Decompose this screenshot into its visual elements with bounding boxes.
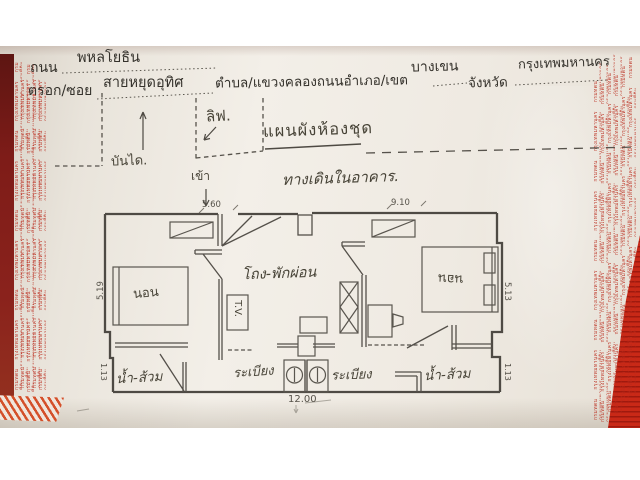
dim-top-left: 5.60 [202, 200, 221, 210]
dim-bottom-width: 12.00 [288, 394, 317, 405]
bedroom-right-partition [342, 242, 366, 347]
enter-label: เข้า [191, 167, 210, 186]
coffee-table [298, 317, 327, 356]
bedroom-left-label: นอน [132, 281, 159, 304]
entrance-door [218, 214, 281, 246]
right-ledge [452, 325, 492, 350]
tv-label: T.V. [232, 300, 243, 317]
top-shaft [298, 215, 312, 235]
corridor-label: ทางเดินในอาคาร. [282, 164, 400, 192]
dim-bottom-left: 1.13 [99, 363, 108, 381]
lift-label: ลิฟ. [205, 103, 231, 128]
soi-label: ตรอก/ซอย [28, 80, 92, 102]
road-label: ถนน [30, 57, 58, 79]
dim-side-right: 5.13 [502, 282, 512, 301]
living-hall-label: โถง-พักผ่อน [242, 261, 317, 287]
balcony-door-tracks [277, 344, 335, 392]
title-underline [265, 144, 361, 149]
plan-title: แผนผังห้องชุด [263, 115, 374, 145]
wardrobe-center [340, 282, 358, 333]
balcony-left-label: ระเบียง [232, 360, 274, 384]
stairs-label: บันได. [111, 149, 148, 171]
wardrobe-top-right [372, 220, 415, 237]
photographed-floorplan-document: กรมที่ดิน กรุงเทพมหานคร กรมที่ดิน กรุงเท… [0, 0, 640, 480]
district-value: บางเขน [411, 55, 459, 78]
province-label: จังหวัด [468, 70, 508, 93]
bath-left-label: น้ำ-ส้วม [115, 365, 162, 389]
district-label: อำเภอ/เขต [343, 72, 408, 89]
balcony-right-label: ระเบียง [331, 363, 372, 385]
wardrobe-top-left [170, 222, 213, 238]
province-value: กรุงเทพมหานคร [518, 50, 610, 74]
bedroom-right-label: นอน [437, 268, 464, 290]
soi-value: สายหยุดอุทิศ [103, 71, 183, 94]
subdistrict-row: ตำบล/แขวงคลองถนนอำเภอ/เขต [215, 68, 408, 93]
dim-side-left: 5.19 [96, 281, 106, 300]
subdistrict-value: คลองถนน [285, 73, 344, 90]
washing-machines [284, 360, 328, 392]
direction-arrows [140, 112, 216, 206]
desk-and-chair [368, 305, 403, 337]
dim-bottom-right: 1.13 [503, 363, 512, 381]
subdistrict-label: ตำบล/แขวง [215, 74, 285, 91]
bath-right-label: น้ำ-ส้วม [423, 362, 470, 386]
bedroom-left-partition [195, 250, 222, 360]
road-value: พหลโยธิน [77, 46, 140, 69]
dim-top-right: 9.10 [391, 198, 410, 208]
